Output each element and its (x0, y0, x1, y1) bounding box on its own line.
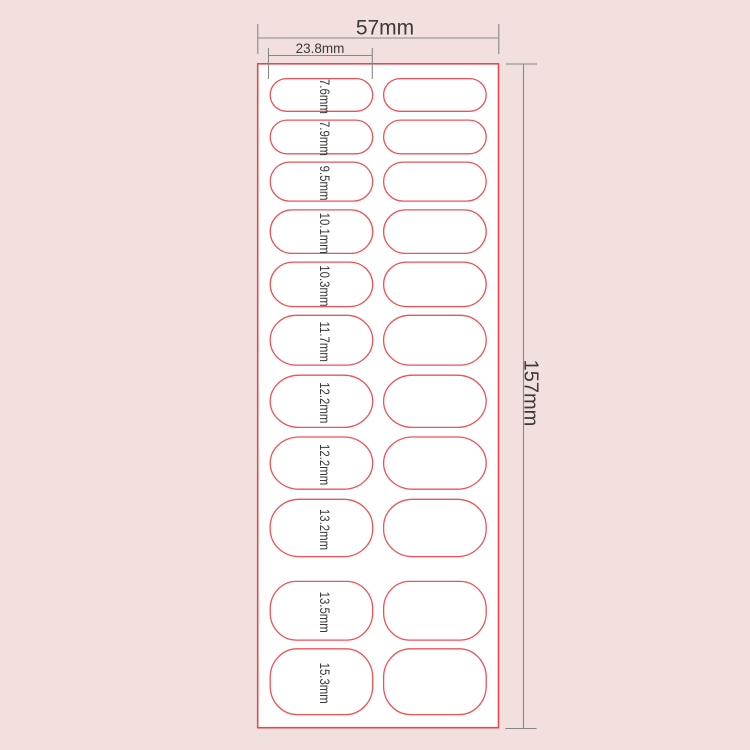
svg-text:10.1mm: 10.1mm (317, 213, 332, 254)
svg-text:23.8mm: 23.8mm (296, 41, 345, 56)
svg-text:11.7mm: 11.7mm (317, 322, 332, 362)
svg-text:7.6mm: 7.6mm (317, 79, 332, 114)
svg-text:57mm: 57mm (356, 17, 414, 40)
svg-text:10.3mm: 10.3mm (317, 265, 332, 306)
svg-text:15.3mm: 15.3mm (317, 663, 332, 704)
svg-text:13.5mm: 13.5mm (317, 592, 332, 633)
svg-text:12.2mm: 12.2mm (317, 444, 332, 485)
svg-text:12.2mm: 12.2mm (317, 382, 332, 423)
svg-text:13.2mm: 13.2mm (317, 509, 332, 550)
svg-text:157mm: 157mm (520, 360, 542, 427)
svg-text:7.9mm: 7.9mm (317, 121, 332, 156)
svg-text:9.5mm: 9.5mm (317, 166, 332, 201)
